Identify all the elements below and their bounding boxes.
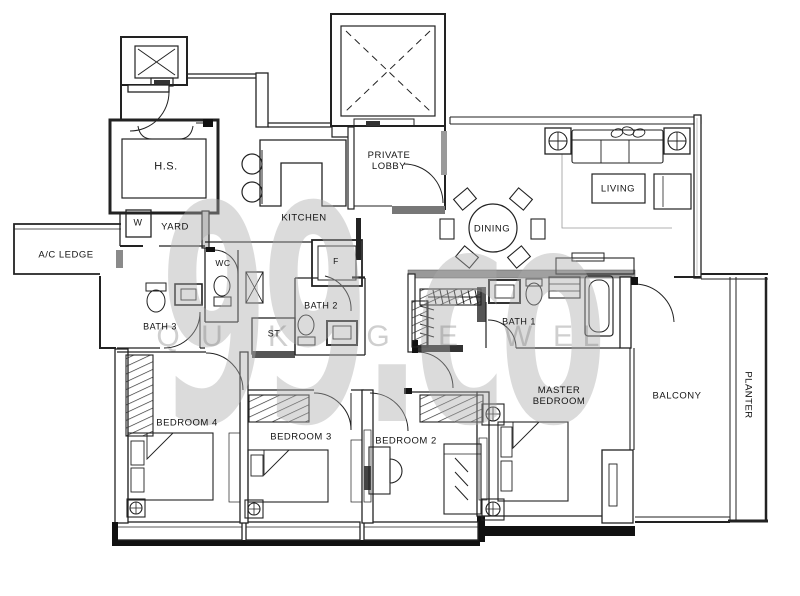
floorplan-page: 99.co QUKGEWEL H.S.WYARDA/C LEDGEKITCHEN… <box>0 0 800 596</box>
floorplan-drawing <box>0 0 800 596</box>
coffee-table-icon <box>592 174 645 203</box>
wc-toilet-icon <box>214 276 231 306</box>
armchair-icon <box>654 174 691 209</box>
sofa-icon <box>572 126 663 163</box>
duct-shaft <box>121 37 187 86</box>
bath2-fixtures <box>298 315 357 345</box>
kitchen-counter-icon <box>242 140 346 206</box>
bath3-fixtures <box>146 283 202 312</box>
lift-shaft <box>331 14 445 126</box>
dining-table-icon <box>440 188 545 268</box>
wardrobe-icons <box>126 289 483 514</box>
bed-icons <box>128 422 568 502</box>
desk-icon <box>369 447 402 494</box>
bath1-fixtures <box>489 276 613 336</box>
walls <box>14 73 768 546</box>
